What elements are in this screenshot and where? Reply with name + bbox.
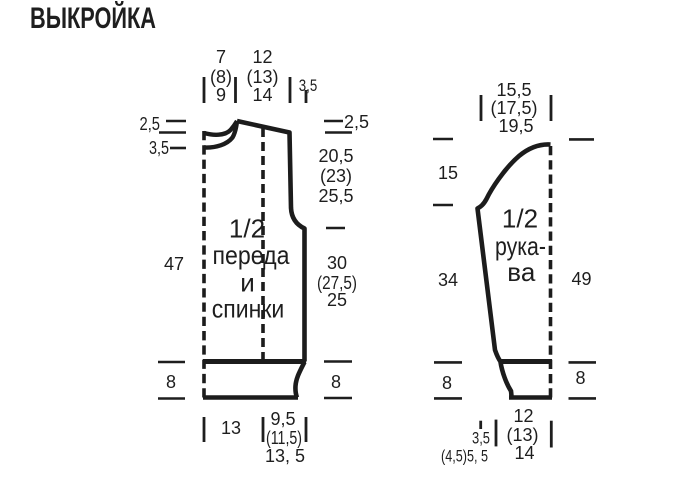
- svg-text:12: 12: [513, 406, 533, 426]
- svg-text:15: 15: [438, 163, 458, 183]
- svg-text:3,5: 3,5: [149, 138, 169, 158]
- svg-text:9,5: 9,5: [270, 409, 295, 429]
- svg-text:8: 8: [166, 372, 176, 392]
- svg-text:34: 34: [438, 270, 458, 290]
- svg-text:ВЫКРОЙКА: ВЫКРОЙКА: [30, 1, 156, 35]
- svg-text:25,5: 25,5: [318, 186, 353, 206]
- svg-text:7: 7: [216, 47, 226, 67]
- svg-text:(4,5)5, 5: (4,5)5, 5: [441, 447, 488, 466]
- svg-text:(13): (13): [506, 425, 538, 445]
- svg-text:3,5: 3,5: [299, 76, 318, 95]
- svg-text:ва: ва: [507, 257, 536, 287]
- svg-text:(23): (23): [320, 166, 352, 186]
- svg-text:спинки: спинки: [212, 294, 285, 324]
- svg-text:47: 47: [164, 254, 184, 274]
- svg-text:3,5: 3,5: [472, 429, 490, 448]
- svg-text:2,5: 2,5: [140, 114, 161, 134]
- svg-text:49: 49: [571, 269, 591, 289]
- svg-text:14: 14: [514, 443, 534, 463]
- svg-text:15,5: 15,5: [496, 80, 531, 100]
- svg-text:19,5: 19,5: [498, 116, 533, 136]
- svg-text:13, 5: 13, 5: [265, 446, 305, 466]
- svg-text:8: 8: [575, 368, 585, 388]
- svg-text:1/2: 1/2: [502, 203, 538, 233]
- svg-text:(11,5): (11,5): [266, 428, 302, 448]
- svg-text:8: 8: [331, 372, 341, 392]
- svg-text:30: 30: [327, 253, 347, 273]
- svg-text:(8): (8): [210, 67, 232, 87]
- svg-text:14: 14: [252, 85, 272, 105]
- svg-text:8: 8: [442, 373, 452, 393]
- svg-text:1/2: 1/2: [229, 214, 265, 244]
- svg-text:12: 12: [252, 47, 272, 67]
- svg-text:переда: переда: [213, 240, 290, 270]
- svg-text:13: 13: [221, 418, 241, 438]
- svg-text:9: 9: [216, 85, 226, 105]
- svg-text:(13): (13): [246, 67, 278, 87]
- svg-text:25: 25: [327, 290, 347, 310]
- svg-text:(17,5): (17,5): [490, 98, 537, 118]
- svg-text:2,5: 2,5: [344, 112, 369, 132]
- svg-text:20,5: 20,5: [318, 146, 353, 166]
